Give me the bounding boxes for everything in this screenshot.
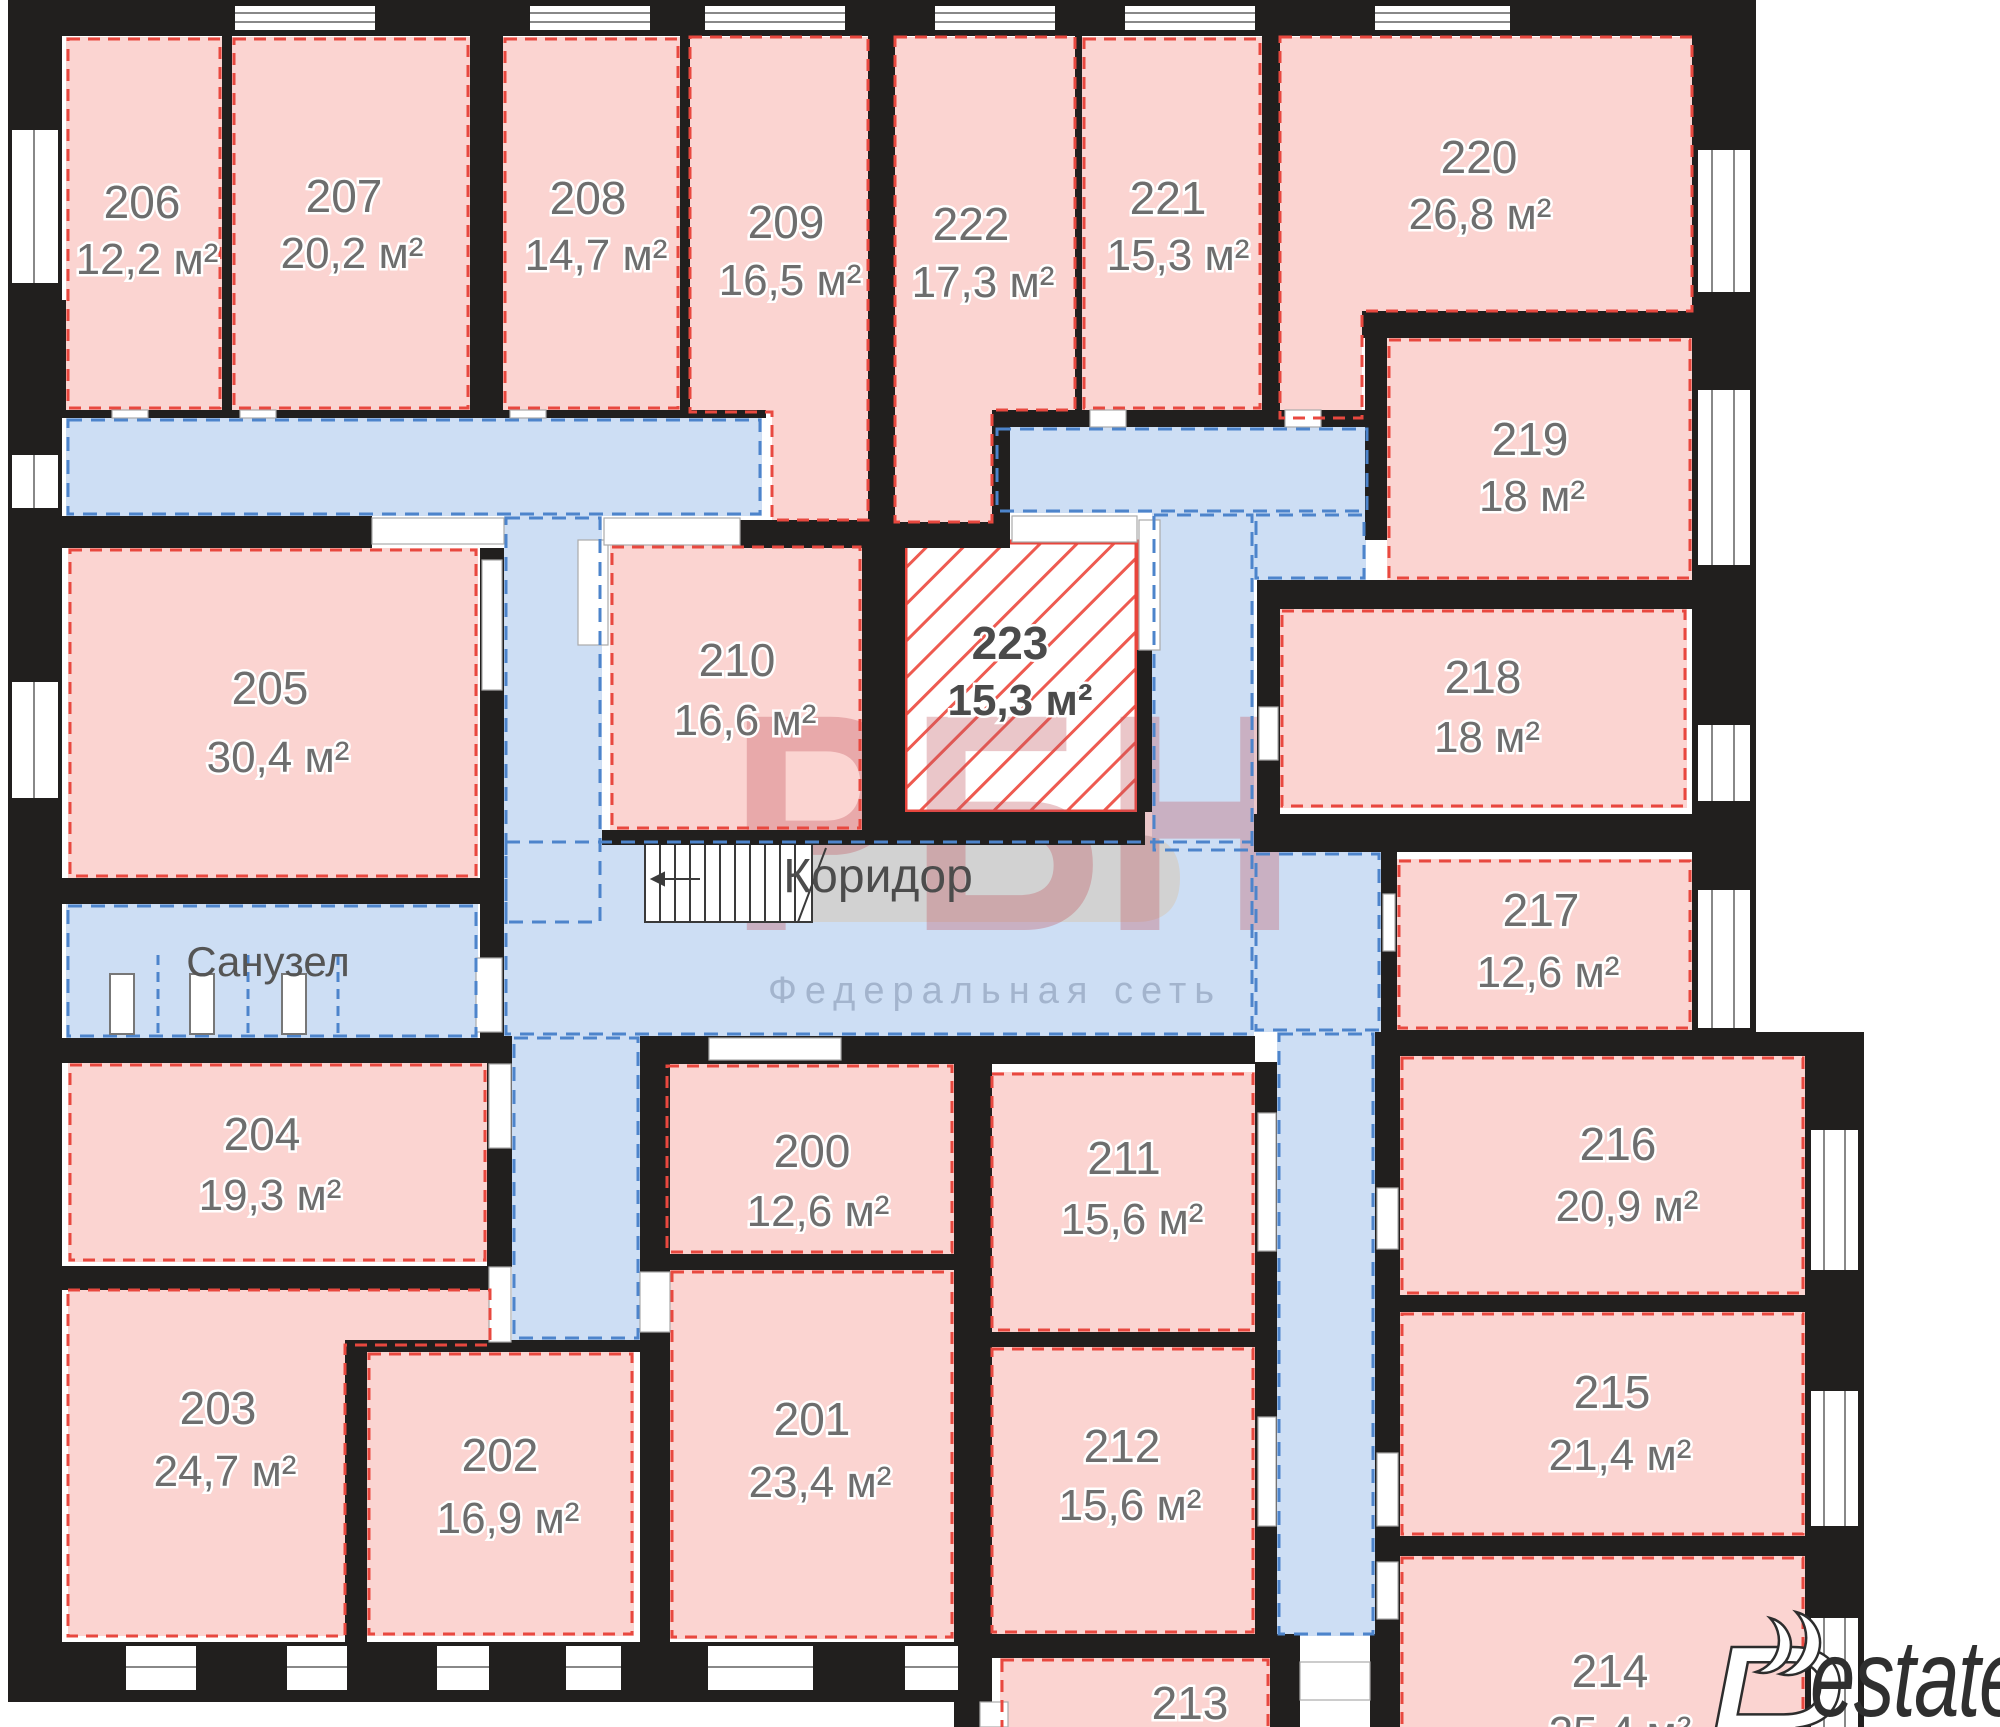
svg-text:18 м²: 18 м² bbox=[1479, 472, 1585, 521]
svg-text:15,6 м²: 15,6 м² bbox=[1061, 1195, 1204, 1244]
svg-text:23,4 м²: 23,4 м² bbox=[749, 1458, 892, 1507]
svg-text:15,6 м²: 15,6 м² bbox=[1059, 1481, 1202, 1530]
svg-text:210: 210 bbox=[699, 634, 776, 686]
svg-text:19,3 м²: 19,3 м² bbox=[199, 1171, 342, 1220]
svg-text:218: 218 bbox=[1445, 651, 1522, 703]
svg-text:Коридор: Коридор bbox=[783, 850, 973, 903]
svg-text:217: 217 bbox=[1503, 884, 1580, 936]
svg-text:21,4 м²: 21,4 м² bbox=[1549, 1431, 1692, 1480]
svg-text:220: 220 bbox=[1441, 131, 1518, 183]
svg-text:207: 207 bbox=[306, 170, 383, 222]
svg-text:209: 209 bbox=[748, 196, 825, 248]
svg-text:214: 214 bbox=[1572, 1645, 1649, 1697]
svg-text:213: 213 bbox=[1152, 1677, 1229, 1727]
svg-text:201: 201 bbox=[774, 1393, 851, 1445]
svg-text:15,3 м²: 15,3 м² bbox=[1107, 231, 1250, 280]
svg-text:12,2 м²: 12,2 м² bbox=[76, 235, 219, 284]
svg-text:14,7 м²: 14,7 м² bbox=[525, 231, 668, 280]
svg-text:17,3 м²: 17,3 м² bbox=[912, 258, 1055, 307]
svg-text:212: 212 bbox=[1084, 1420, 1161, 1472]
svg-text:208: 208 bbox=[550, 172, 627, 224]
svg-text:206: 206 bbox=[104, 176, 181, 228]
svg-text:12,6 м²: 12,6 м² bbox=[747, 1187, 890, 1236]
svg-text:203: 203 bbox=[180, 1382, 257, 1434]
svg-text:215: 215 bbox=[1574, 1366, 1651, 1418]
svg-text:222: 222 bbox=[933, 198, 1010, 250]
svg-text:20,2 м²: 20,2 м² bbox=[281, 229, 424, 278]
svg-text:200: 200 bbox=[774, 1125, 851, 1177]
svg-text:205: 205 bbox=[232, 662, 309, 714]
svg-text:12,6 м²: 12,6 м² bbox=[1477, 948, 1620, 997]
svg-text:20,9 м²: 20,9 м² bbox=[1556, 1182, 1699, 1231]
svg-text:216: 216 bbox=[1580, 1118, 1657, 1170]
svg-text:estate: estate bbox=[1810, 1616, 2000, 1727]
svg-text:15,3 м²: 15,3 м² bbox=[947, 676, 1092, 725]
svg-text:18 м²: 18 м² bbox=[1434, 713, 1540, 762]
svg-text:219: 219 bbox=[1492, 413, 1569, 465]
svg-text:223: 223 bbox=[972, 617, 1049, 669]
svg-text:204: 204 bbox=[224, 1108, 301, 1160]
svg-text:221: 221 bbox=[1130, 172, 1207, 224]
svg-text:202: 202 bbox=[462, 1429, 539, 1481]
svg-text:30,4 м²: 30,4 м² bbox=[207, 733, 350, 782]
svg-text:24,7 м²: 24,7 м² bbox=[154, 1447, 297, 1496]
svg-text:16,5 м²: 16,5 м² bbox=[719, 256, 862, 305]
svg-text:211: 211 bbox=[1087, 1132, 1160, 1184]
svg-text:Санузел: Санузел bbox=[186, 938, 350, 985]
svg-text:26,8 м²: 26,8 м² bbox=[1409, 190, 1552, 239]
svg-text:Федеральная сеть: Федеральная сеть bbox=[768, 970, 1222, 1012]
svg-text:16,6 м²: 16,6 м² bbox=[674, 696, 817, 745]
svg-text:25,4 м²: 25,4 м² bbox=[1549, 1708, 1692, 1727]
svg-text:16,9 м²: 16,9 м² bbox=[437, 1494, 580, 1543]
